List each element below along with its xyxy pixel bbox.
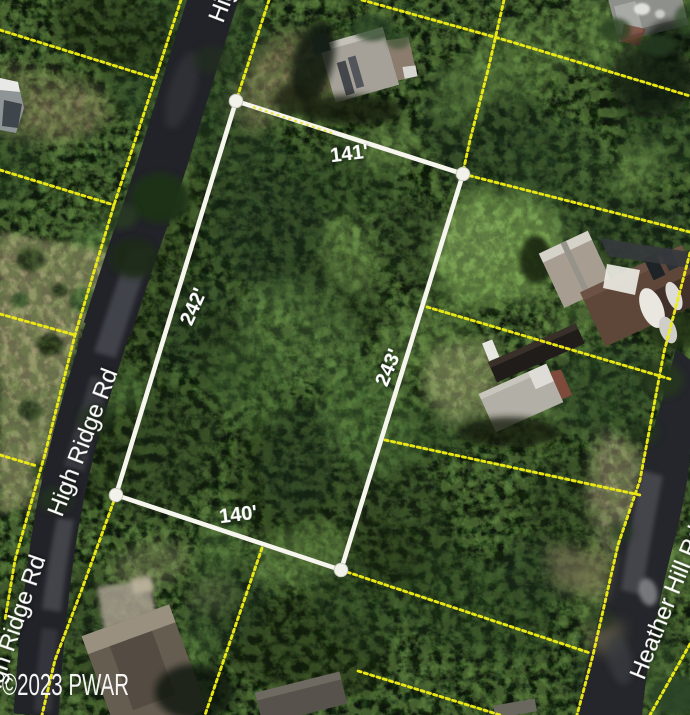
svg-text:141': 141' [329, 141, 370, 167]
svg-text:©2023 PWAR: ©2023 PWAR [2, 667, 129, 702]
svg-text:140': 140' [218, 502, 259, 528]
